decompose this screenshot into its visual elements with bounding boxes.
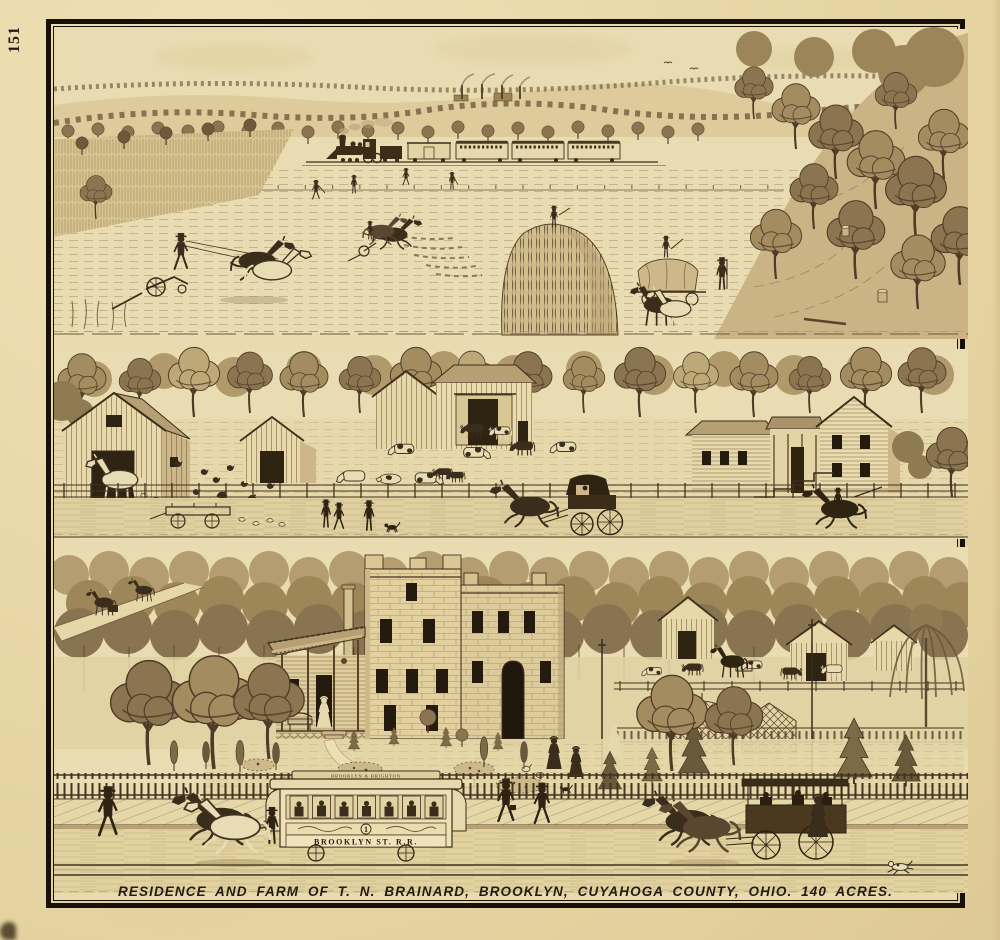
- plate-frame-inner: BROOKLYN & BRIGHTON: [53, 26, 958, 901]
- big-barn: [372, 365, 536, 449]
- panel-farmyard: [54, 347, 968, 539]
- right-wing: [459, 573, 564, 746]
- plate-caption: RESIDENCE AND FARM OF T. N. BRAINARD, BR…: [54, 884, 957, 900]
- plate-frame: BROOKLYN & BRIGHTON: [46, 19, 965, 908]
- boxcar: [407, 143, 451, 162]
- paper-edge-shade: [992, 0, 1000, 940]
- ink-smudge: [0, 922, 16, 940]
- atlas-page: 151: [0, 0, 1000, 940]
- panel-farm-fields: [54, 27, 968, 339]
- main-block: [365, 555, 461, 739]
- streetcar-number: 1: [364, 825, 368, 834]
- streetcar-roof-sign: BROOKLYN & BRIGHTON: [331, 774, 401, 779]
- page-number: 151: [6, 26, 24, 53]
- lithograph-illustration: BROOKLYN & BRIGHTON: [54, 27, 968, 911]
- streetcar-name-panel: BROOKLYN ST. R.R.: [314, 838, 418, 847]
- passenger-coaches: [456, 141, 620, 162]
- panel1-ground-shadow: [54, 325, 968, 338]
- panel-residence: BROOKLYN & BRIGHTON: [54, 547, 968, 893]
